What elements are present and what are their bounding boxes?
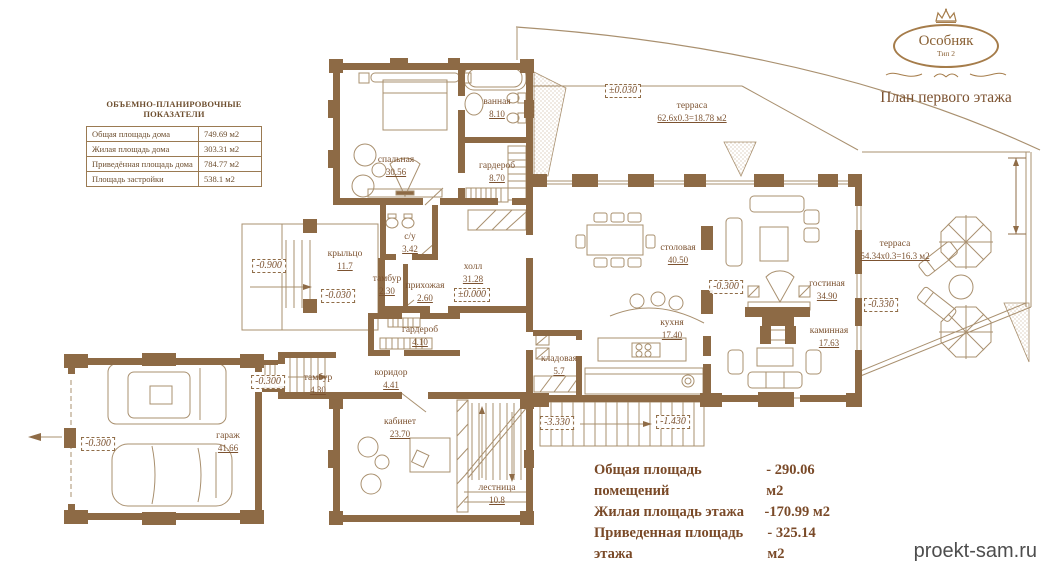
room-label-tambur-2-30: тамбур2.30 <box>373 274 401 299</box>
summary-line: Приведенная площадь этажа - 325.14 м2 <box>594 523 830 565</box>
summary-value: -170.99 м2 <box>765 502 830 523</box>
room-label-vannaya: ванная8.10 <box>483 97 510 122</box>
room-label-koridor: коридор4.41 <box>374 368 407 393</box>
summary-line: Жилая площадь этажа -170.99 м2 <box>594 502 830 523</box>
logo-block: Особняк Тип 2 План первого этажа <box>876 8 1016 107</box>
table-row: Приведённая площадь дома 784.77 м2 <box>87 157 262 172</box>
elevation-mark: -0.300 <box>251 375 285 389</box>
room-label-stolovaya: столовая40.50 <box>660 243 695 268</box>
room-label-kaminnaya: каминная17.63 <box>810 326 849 351</box>
room-label-holl: холл31.28 <box>463 262 483 287</box>
room-label-garderob-4-10: гардероб4.10 <box>402 325 438 350</box>
table-row: Жилая площадь дома 303.31 м2 <box>87 142 262 157</box>
indicator-value: 538.1 м2 <box>199 172 262 187</box>
room-label-kuhnya: кухня17.40 <box>660 318 683 343</box>
elevation-mark: ±0.000 <box>454 288 490 302</box>
room-label-kryltso: крыльцо11.7 <box>328 249 363 274</box>
room-label-lestnitsa: лестница10.8 <box>478 483 515 508</box>
room-label-kladovaya: кладовая5.7 <box>541 354 577 379</box>
summary-label: Жилая площадь этажа <box>594 502 744 523</box>
elevation-mark: -1.430 <box>656 415 690 429</box>
room-label-garderob-8-70: гардероб8.70 <box>479 161 515 186</box>
logo-subtitle: Тип 2 <box>937 49 955 58</box>
indicator-value: 784.77 м2 <box>199 157 262 172</box>
elevation-mark: -0.300 <box>81 437 115 451</box>
flourish-ornament <box>876 68 1016 86</box>
plan-caption: План первого этажа <box>876 89 1016 107</box>
indicator-value: 749.69 м2 <box>199 127 262 142</box>
summary-label: Приведенная площадь этажа <box>594 523 767 565</box>
table-row: Площадь застройки 538.1 м2 <box>87 172 262 187</box>
room-label-su: с/у3.42 <box>402 232 418 257</box>
summary-value: - 325.14 м2 <box>767 523 830 565</box>
table-row: Общая площадь дома 749.69 м2 <box>87 127 262 142</box>
summary-label: Общая площадь помещений <box>594 460 766 502</box>
elevation-mark: -0.030 <box>321 289 355 303</box>
crown-icon <box>876 8 1016 24</box>
room-label-kabinet: кабинет23.70 <box>384 417 416 442</box>
indicators-table: ОБЪЕМНО-ПЛАНИРОВОЧНЫЕ ПОКАЗАТЕЛИ Общая п… <box>86 99 262 187</box>
indicators-table-title: ОБЪЕМНО-ПЛАНИРОВОЧНЫЕ ПОКАЗАТЕЛИ <box>86 99 262 119</box>
indicator-label: Жилая площадь дома <box>87 142 199 157</box>
room-label-tambur-4-30: тамбур4.30 <box>304 373 332 398</box>
room-label-spalnaya: спальная30.56 <box>378 155 414 180</box>
indicator-label: Общая площадь дома <box>87 127 199 142</box>
area-summary: Общая площадь помещений - 290.06 м2 Жила… <box>594 460 830 565</box>
summary-line: Общая площадь помещений - 290.06 м2 <box>594 460 830 502</box>
room-label-prihozhaya: прихожая2.60 <box>406 281 445 306</box>
elevation-mark: -0.330 <box>864 298 898 312</box>
logo-title: Особняк <box>919 34 974 49</box>
elevation-mark: -3.330 <box>540 416 574 430</box>
logo-oval: Особняк Тип 2 <box>893 24 999 68</box>
room-label-gostinaya: гостиная34.90 <box>809 279 845 304</box>
elevation-mark: ±0.030 <box>605 84 641 98</box>
room-label-terrasa-top: терраса62.6x0.3=18.78 м2 <box>657 101 726 126</box>
indicator-value: 303.31 м2 <box>199 142 262 157</box>
indicators-table-grid: Общая площадь дома 749.69 м2 Жилая площа… <box>86 126 262 187</box>
indicator-label: Площадь застройки <box>87 172 199 187</box>
elevation-mark: -0.900 <box>252 259 286 273</box>
indicator-label: Приведённая площадь дома <box>87 157 199 172</box>
room-label-terrasa-right: терраса54.34x0.3=16.3 м2 <box>860 239 929 264</box>
summary-value: - 290.06 м2 <box>766 460 830 502</box>
room-label-garazh: гараж41.66 <box>216 431 240 456</box>
floor-plan-page: ОБЪЕМНО-ПЛАНИРОВОЧНЫЕ ПОКАЗАТЕЛИ Общая п… <box>0 0 1043 567</box>
elevation-mark: -0.300 <box>709 280 743 294</box>
site-watermark: proekt-sam.ru <box>914 540 1037 563</box>
